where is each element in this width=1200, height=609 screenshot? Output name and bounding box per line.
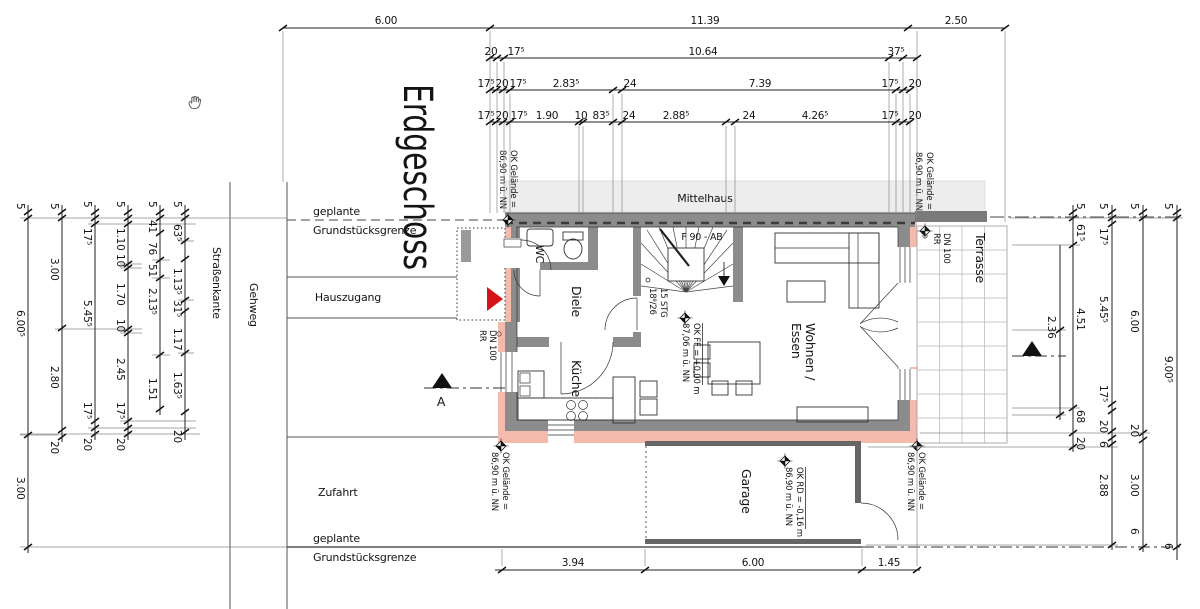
dim-label: 10 <box>114 319 126 332</box>
dim-label: 10 <box>575 110 588 122</box>
dim-label: 17⁵ <box>1097 228 1109 245</box>
dim-label: 10.64 <box>688 46 718 58</box>
gelaende-label-line1: OK Gelände = <box>500 452 510 510</box>
dim-label: 5 <box>81 201 93 207</box>
dim-label: 2.50 <box>945 15 968 27</box>
dim-chain-bottom: 3.94 6.00 1.45 <box>562 557 901 569</box>
mittelhaus-band: Mittelhaus <box>505 181 985 212</box>
hand-cursor-icon <box>189 96 201 108</box>
coffee-table <box>787 281 825 302</box>
dim-label: 3.00 <box>14 477 26 500</box>
hauszugang-label: Hauszugang <box>315 291 381 304</box>
rr-label-dn: DN 100 <box>941 233 951 264</box>
dim-label: 37⁵ <box>888 46 905 58</box>
terrace-doors <box>860 283 918 367</box>
rr-label-dn: DN 100 <box>487 330 497 361</box>
dim-chain-left3: 5 17⁵ 5.45⁵ 17⁵ 20 <box>81 201 93 451</box>
grenze-top-line1: geplante <box>313 205 360 218</box>
sofa <box>775 233 879 308</box>
mittelhaus-label: Mittelhaus <box>677 192 733 205</box>
dim-label: 24 <box>624 78 637 90</box>
dim-label: 4.51 <box>1074 308 1086 331</box>
dim-label: 20 <box>81 438 93 451</box>
section-triangle-icon <box>432 373 452 388</box>
dim-label: 83⁵ <box>593 110 610 122</box>
dim-label: 9.00⁵ <box>1162 356 1174 383</box>
grenze-bottom-line1: geplante <box>313 532 360 545</box>
dim-label: 51 <box>146 264 158 277</box>
entrance-porch <box>457 228 505 320</box>
dim-label: 10 <box>114 254 126 267</box>
dim-label: 6.00⁵ <box>14 310 26 337</box>
dim-label: 20 <box>496 78 509 90</box>
wohnen-label-line1: Wohnen / <box>803 323 818 381</box>
level-rd-line2: 86,90 m ü. NN <box>783 467 793 526</box>
dim-label: 20 <box>1074 437 1086 450</box>
dim-label: 5.45⁵ <box>1097 296 1109 323</box>
dim-label: 5 <box>171 201 183 207</box>
dim-label: 5 <box>1097 203 1109 209</box>
dim-label: 6 <box>1128 528 1140 535</box>
section-triangle-icon <box>1022 341 1042 356</box>
window-bottom <box>548 420 574 443</box>
dim-label: 2.88 <box>1097 474 1109 497</box>
dim-label: 17⁵ <box>882 78 899 90</box>
porch-column <box>461 230 471 262</box>
dim-label: 6 <box>1097 441 1109 448</box>
kueche-label: Küche <box>569 360 584 397</box>
dim-chain-left1: 5 6.00⁵ 3.00 <box>14 203 26 500</box>
stair-fire-label: F 90 - AB <box>681 232 722 243</box>
dim-label: 6.00 <box>375 15 398 27</box>
stair-steps-line1: 15 STG <box>658 288 668 318</box>
stair-arrow-icon <box>718 276 730 286</box>
dim-chain-right4: 5 9.00⁵ 6 <box>1162 203 1174 550</box>
gelaende-label-line2: 86,90 m ü. NN <box>489 452 499 511</box>
gelaende-label-line1: OK Gelände = <box>924 152 934 210</box>
window-right-2 <box>897 369 918 400</box>
dim-label: 5 <box>114 201 126 207</box>
dim-label: 1.51 <box>146 378 158 401</box>
dim-label: 1.13⁵ <box>171 268 183 295</box>
dim-label: 17⁵ <box>511 110 528 122</box>
rr-label-rr: RR <box>931 233 941 245</box>
kitchen-counter <box>518 371 657 423</box>
dim-chain-top2: 20 17⁵ 10.64 37⁵ <box>485 46 905 58</box>
dim-label: 24 <box>743 110 756 122</box>
grenze-bottom-line2: Grundstücksgrenze <box>313 551 417 564</box>
dim-label: 5 <box>1074 203 1086 209</box>
gelaende-label-line1: OK Gelände = <box>508 150 518 208</box>
level-ff-line2: 87,06 m ü. NN <box>680 323 690 382</box>
dim-label: 1.10 <box>114 228 126 251</box>
dim-label: 63⁵ <box>171 224 183 241</box>
gelaende-label-line1: OK Gelände = <box>916 452 926 510</box>
dim-label: 20 <box>1128 424 1140 437</box>
dim-chain-top4: 17⁵ 20 17⁵ 1.90 10 83⁵ 24 2.88⁵ 24 4.26⁵… <box>478 110 922 122</box>
dim-label: 1.90 <box>536 110 559 122</box>
zufahrt-label: Zufahrt <box>318 486 358 499</box>
dim-chain-right2: 5 17⁵ 5.45⁵ 17⁵ 20 6 2.88 <box>1097 203 1109 497</box>
gelaende-label-line2: 86,90 m ü. NN <box>913 152 923 211</box>
dim-label: 61⁵ <box>1074 224 1086 241</box>
staircase: F 90 - AB 15 STG 18⁸/26 <box>641 227 733 318</box>
dim-label: 20 <box>114 438 126 451</box>
dim-label: 3.00 <box>1128 474 1140 497</box>
dim-label: 1.17 <box>171 328 183 351</box>
wohnen-label-line2: Essen <box>789 323 804 359</box>
dim-label: 20 <box>171 430 183 443</box>
dim-chain-top3: 17⁵ 20 17⁵ 2.83⁵ 24 7.39 17⁵ 20 <box>478 78 922 90</box>
dim-label: 6.00 <box>1128 310 1140 333</box>
dim-label: 5 <box>146 201 158 207</box>
gelaende-label-line2: 86,90 m ü. NN <box>497 150 507 209</box>
strassenkante-label: Straßenkante <box>210 247 223 319</box>
dim-label: 6.00 <box>742 557 765 569</box>
dim-label: 2.83⁵ <box>553 78 580 90</box>
terrace: Terrasse <box>915 211 1007 443</box>
dim-label: 2.45 <box>114 358 126 381</box>
dim-label: 17⁵ <box>508 46 525 58</box>
gelaende-label-line2: 86,90 m ü. NN <box>905 452 915 511</box>
garage: Garage OK RD = -0,16 m 86,90 m ü. NN <box>645 441 898 544</box>
dim-label: 68 <box>1074 410 1086 423</box>
dining-set <box>694 342 760 395</box>
dim-chain-right3: 5 6.00 20 3.00 6 <box>1128 203 1140 535</box>
dim-label: 20 <box>496 110 509 122</box>
section-label: A <box>437 394 446 409</box>
dim-label: 17⁵ <box>81 402 93 419</box>
dim-label: 2.88⁵ <box>663 110 690 122</box>
dim-label: 3.00 <box>48 258 60 281</box>
garage-label: Garage <box>739 469 754 514</box>
dim-label: 20 <box>485 46 498 58</box>
dim-label: 7.39 <box>749 78 772 90</box>
dim-label: 3.94 <box>562 557 585 569</box>
page-title: Erdgeschoss <box>394 84 440 270</box>
dim-label: 2.80 <box>48 366 60 389</box>
dim-chain-left4: 5 1.10 10 1.70 10 2.45 17⁵ 20 <box>114 201 126 451</box>
dim-label: 1.63⁵ <box>171 372 183 399</box>
dim-label: 17⁵ <box>882 110 899 122</box>
floorplan-drawing: Mittelhaus Straßenkante Gehweg Hauszugan… <box>0 0 1200 609</box>
dim-label: 5 <box>1128 203 1140 209</box>
section-marker-right <box>1012 341 1066 356</box>
dim-label: 2.13⁵ <box>146 288 158 315</box>
living-door <box>605 296 643 332</box>
diele-label: Diele <box>569 286 584 317</box>
dim-label: 17⁵ <box>1097 385 1109 402</box>
house-walls-insulation <box>498 218 917 443</box>
wc-label: WC <box>533 245 546 264</box>
window-right-1 <box>897 247 918 283</box>
gehweg-label: Gehweg <box>247 283 260 327</box>
dim-label: 31⁵ <box>171 300 183 317</box>
dim-label: 17⁵ <box>81 228 93 245</box>
dim-chain-top1: 6.00 11.39 2.50 <box>375 15 968 27</box>
dim-label: 4.26⁵ <box>802 110 829 122</box>
stair-steps-line2: 18⁸/26 <box>647 288 657 315</box>
window-left <box>497 352 518 392</box>
dim-label: 24 <box>623 110 636 122</box>
dim-label: 17⁵ <box>478 110 495 122</box>
dim-label: 2.36 <box>1045 316 1057 339</box>
dim-label: 1.45 <box>878 557 901 569</box>
entrance-arrow-icon <box>487 287 503 311</box>
dim-label: 6 <box>1162 543 1174 550</box>
dim-label: 20 <box>909 78 922 90</box>
dim-chain-left5: 5 41 76 51 2.13⁵ 1.51 <box>146 201 158 401</box>
dim-label: 20 <box>909 110 922 122</box>
dim-label: 5 <box>14 203 26 209</box>
dim-label: 17⁵ <box>510 78 527 90</box>
dim-label: 1.70 <box>114 283 126 306</box>
dim-chain-right1: 5 61⁵ 2.36 4.51 68 20 <box>1045 203 1086 450</box>
terrasse-label: Terrasse <box>973 232 988 284</box>
dim-label: 5.45⁵ <box>81 300 93 327</box>
level-rd-line1: OK RD = -0,16 m <box>794 467 804 537</box>
dim-label: 11.39 <box>690 15 719 27</box>
dim-chain-left6: 5 63⁵ 1.13⁵ 31⁵ 1.17 1.63⁵ 20 <box>171 201 183 443</box>
dim-label: 20 <box>1097 420 1109 433</box>
dim-label: 5 <box>1162 203 1174 209</box>
dim-label: 5 <box>48 203 60 209</box>
dim-label: 41 <box>146 220 158 233</box>
dim-chain-left2: 5 3.00 2.80 20 <box>48 203 60 454</box>
section-marker-left: A <box>424 373 508 409</box>
rr-label-rr: RR <box>477 330 487 342</box>
dim-label: 76 <box>146 242 158 255</box>
level-ff-line1: OK FF = +0,00 m <box>691 323 701 394</box>
dim-label: 17⁵ <box>114 402 126 419</box>
dim-label: 20 <box>48 441 60 454</box>
garage-door <box>861 503 898 540</box>
dim-label: 17⁵ <box>478 78 495 90</box>
kitchen-door <box>561 342 613 394</box>
